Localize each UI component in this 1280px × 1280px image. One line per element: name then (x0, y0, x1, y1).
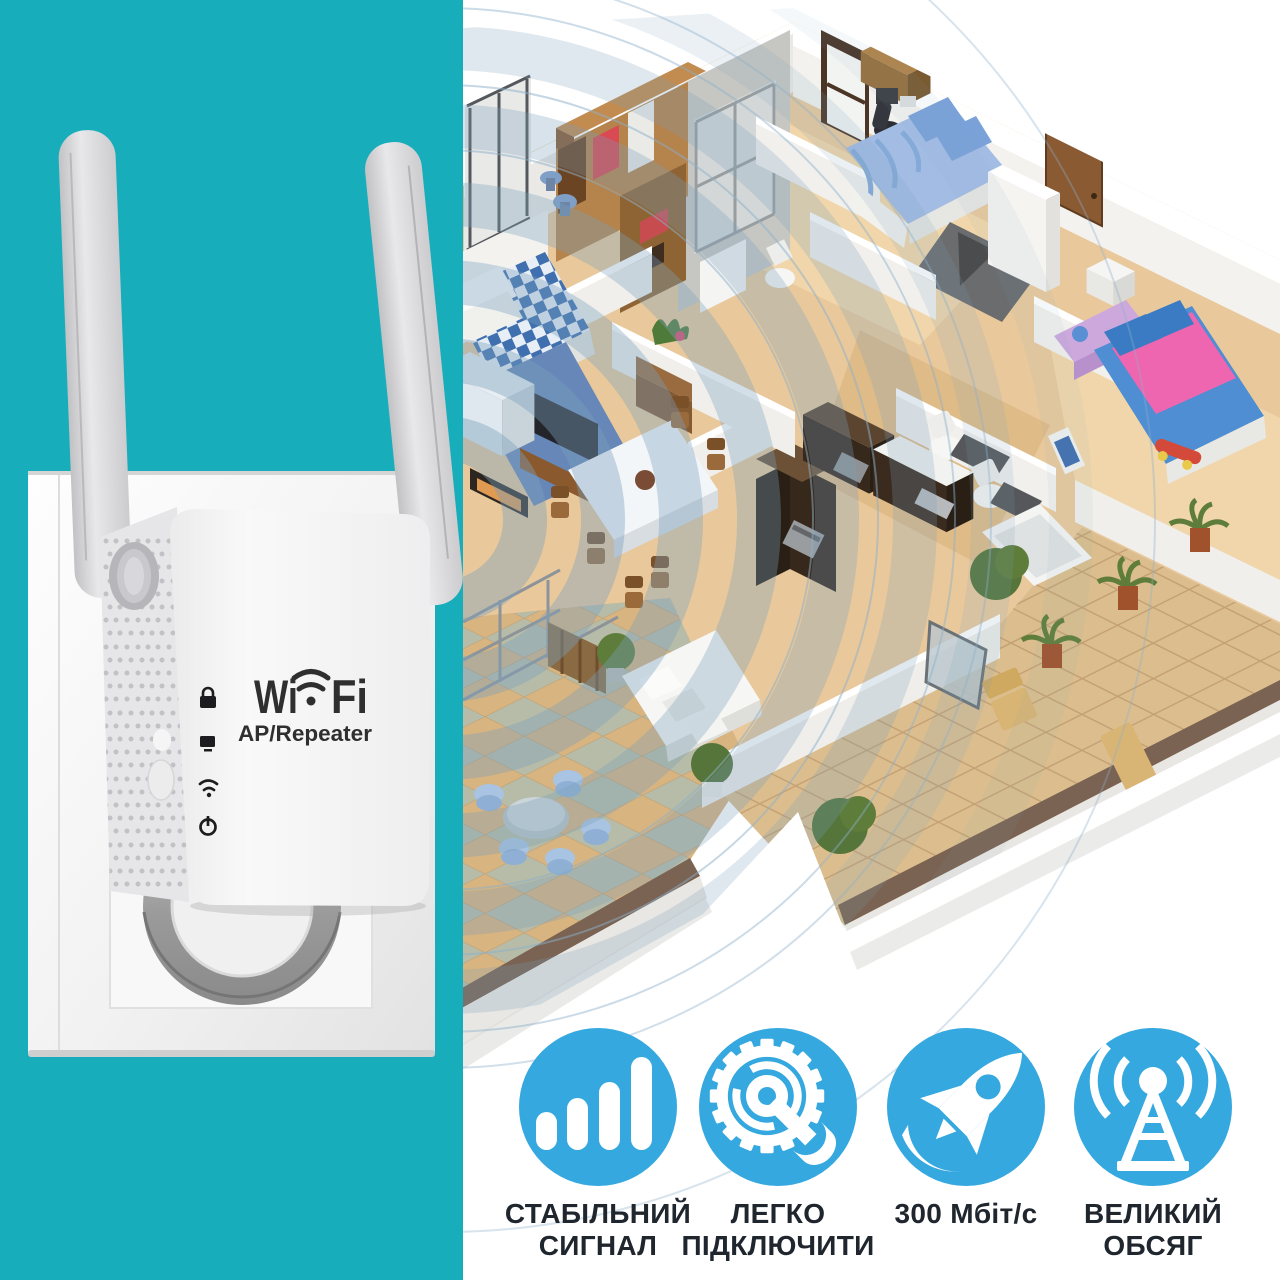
svg-text:СТАБІЛЬНИЙ: СТАБІЛЬНИЙ (505, 1197, 691, 1229)
svg-text:Fi: Fi (331, 670, 368, 723)
svg-text:300 Мбіт/с: 300 Мбіт/с (895, 1198, 1038, 1229)
svg-text:ПІДКЛЮЧИТИ: ПІДКЛЮЧИТИ (681, 1230, 874, 1261)
svg-text:ЛЕГКО: ЛЕГКО (731, 1198, 826, 1229)
svg-text:Wi: Wi (254, 670, 298, 723)
svg-text:СИГНАЛ: СИГНАЛ (539, 1230, 657, 1261)
svg-text:ОБСЯГ: ОБСЯГ (1103, 1230, 1202, 1261)
svg-text:AP/Repeater: AP/Repeater (238, 721, 372, 746)
svg-text:ВЕЛИКИЙ: ВЕЛИКИЙ (1084, 1197, 1222, 1229)
